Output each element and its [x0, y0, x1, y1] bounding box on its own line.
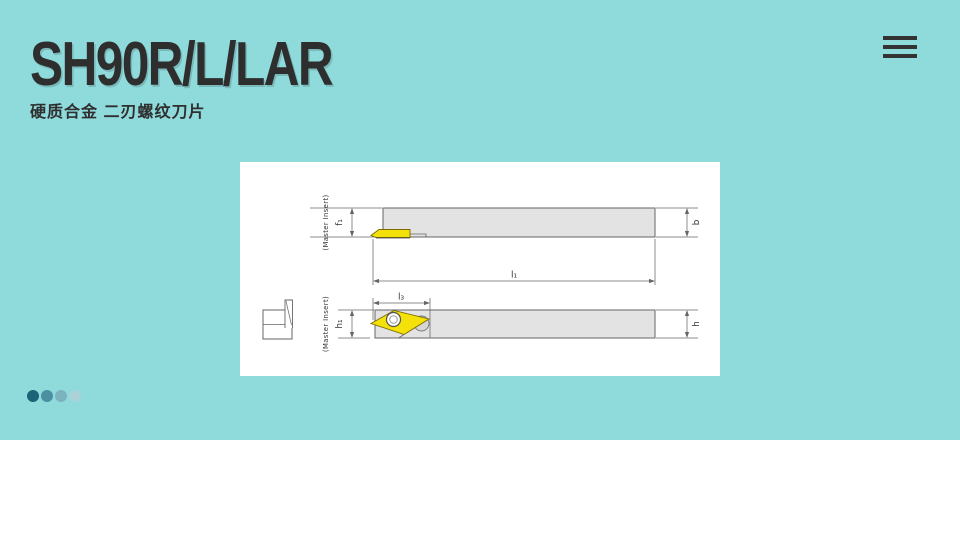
- dim-label-b: b: [692, 219, 702, 225]
- tool-drawing-panel: f₁ (Master Insert) b l₁: [240, 162, 720, 376]
- dim-label-l3: l₃: [398, 293, 405, 303]
- pagination-dot[interactable]: [69, 390, 81, 402]
- insert-side-view: [371, 230, 410, 238]
- dim-label-h1: h₁: [335, 319, 345, 329]
- hamburger-bar: [883, 54, 917, 58]
- pagination-dot[interactable]: [41, 390, 53, 402]
- hamburger-bar: [883, 45, 917, 49]
- pagination-dot[interactable]: [55, 390, 67, 402]
- dim-label-h: h: [692, 321, 702, 327]
- master-insert-label-bottom: (Master Insert): [322, 296, 330, 352]
- slide-page: SH90R/L/LAR 硬质合金 二刃螺纹刀片: [0, 0, 960, 540]
- dim-label-f1: f₁: [335, 219, 345, 226]
- hero-section: SH90R/L/LAR 硬质合金 二刃螺纹刀片: [0, 0, 960, 440]
- dim-label-l1: l₁: [511, 271, 518, 281]
- page-subtitle: 硬质合金 二刃螺纹刀片: [30, 98, 205, 122]
- footer-section: 刀具系列: [0, 440, 960, 540]
- pagination-dot-active[interactable]: [27, 390, 39, 402]
- menu-hamburger-icon[interactable]: [883, 36, 917, 58]
- tool-technical-drawing: f₁ (Master Insert) b l₁: [240, 162, 720, 376]
- holder-body-top-view: [383, 208, 655, 237]
- hamburger-bar: [883, 36, 917, 40]
- pagination-dots: [27, 390, 81, 402]
- master-insert-label-top: (Master Insert): [322, 194, 330, 250]
- page-title: SH90R/L/LAR: [30, 34, 332, 96]
